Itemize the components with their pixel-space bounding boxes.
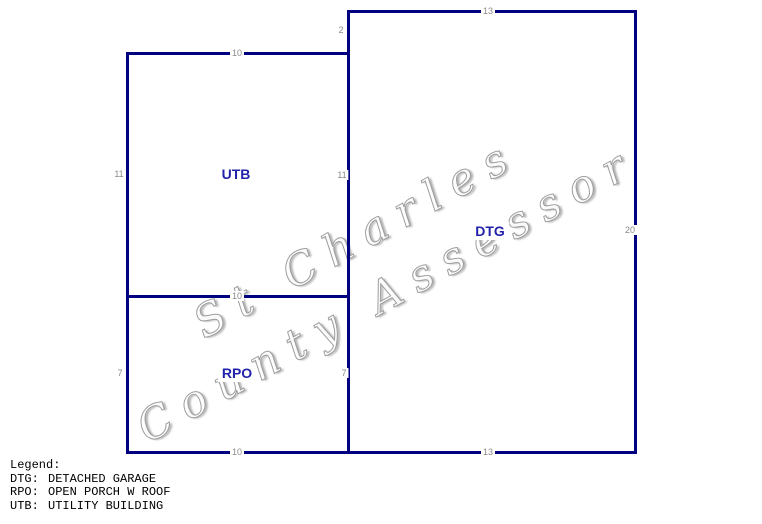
legend-desc-utb: UTILITY BUILDING: [48, 500, 163, 514]
dimension-rpo-bottom: 10: [230, 447, 244, 457]
legend-code-dtg: DTG:: [10, 473, 48, 487]
dimension-dtg-left-upper: 2: [336, 25, 345, 35]
dimension-rpo-left: 7: [115, 368, 124, 378]
property-sketch-canvas: St Charles County Assessor UTB RPO DTG 1…: [0, 0, 762, 524]
utility-building-label: UTB: [218, 165, 255, 183]
dimension-rpo-right: 7: [339, 368, 348, 378]
legend-desc-rpo: OPEN PORCH W ROOF: [48, 486, 170, 500]
legend-entry: RPO: OPEN PORCH W ROOF: [10, 486, 170, 500]
dimension-utb-rpo-divider: 10: [230, 291, 244, 301]
legend-entry: DTG: DETACHED GARAGE: [10, 473, 170, 487]
legend-entry: UTB: UTILITY BUILDING: [10, 500, 170, 514]
dimension-utb-right: 11: [335, 170, 348, 180]
open-porch-label: RPO: [218, 364, 256, 382]
legend: Legend: DTG: DETACHED GARAGE RPO: OPEN P…: [10, 459, 170, 513]
dimension-utb-left: 11: [112, 169, 125, 179]
legend-desc-dtg: DETACHED GARAGE: [48, 473, 156, 487]
detached-garage-label: DTG: [471, 222, 509, 240]
dimension-dtg-right: 20: [623, 225, 637, 235]
legend-code-rpo: RPO:: [10, 486, 48, 500]
legend-code-utb: UTB:: [10, 500, 48, 514]
legend-title: Legend:: [10, 459, 170, 473]
dimension-dtg-bottom: 13: [481, 447, 495, 457]
dimension-dtg-top: 13: [481, 6, 495, 16]
dimension-utb-top: 10: [230, 48, 244, 58]
